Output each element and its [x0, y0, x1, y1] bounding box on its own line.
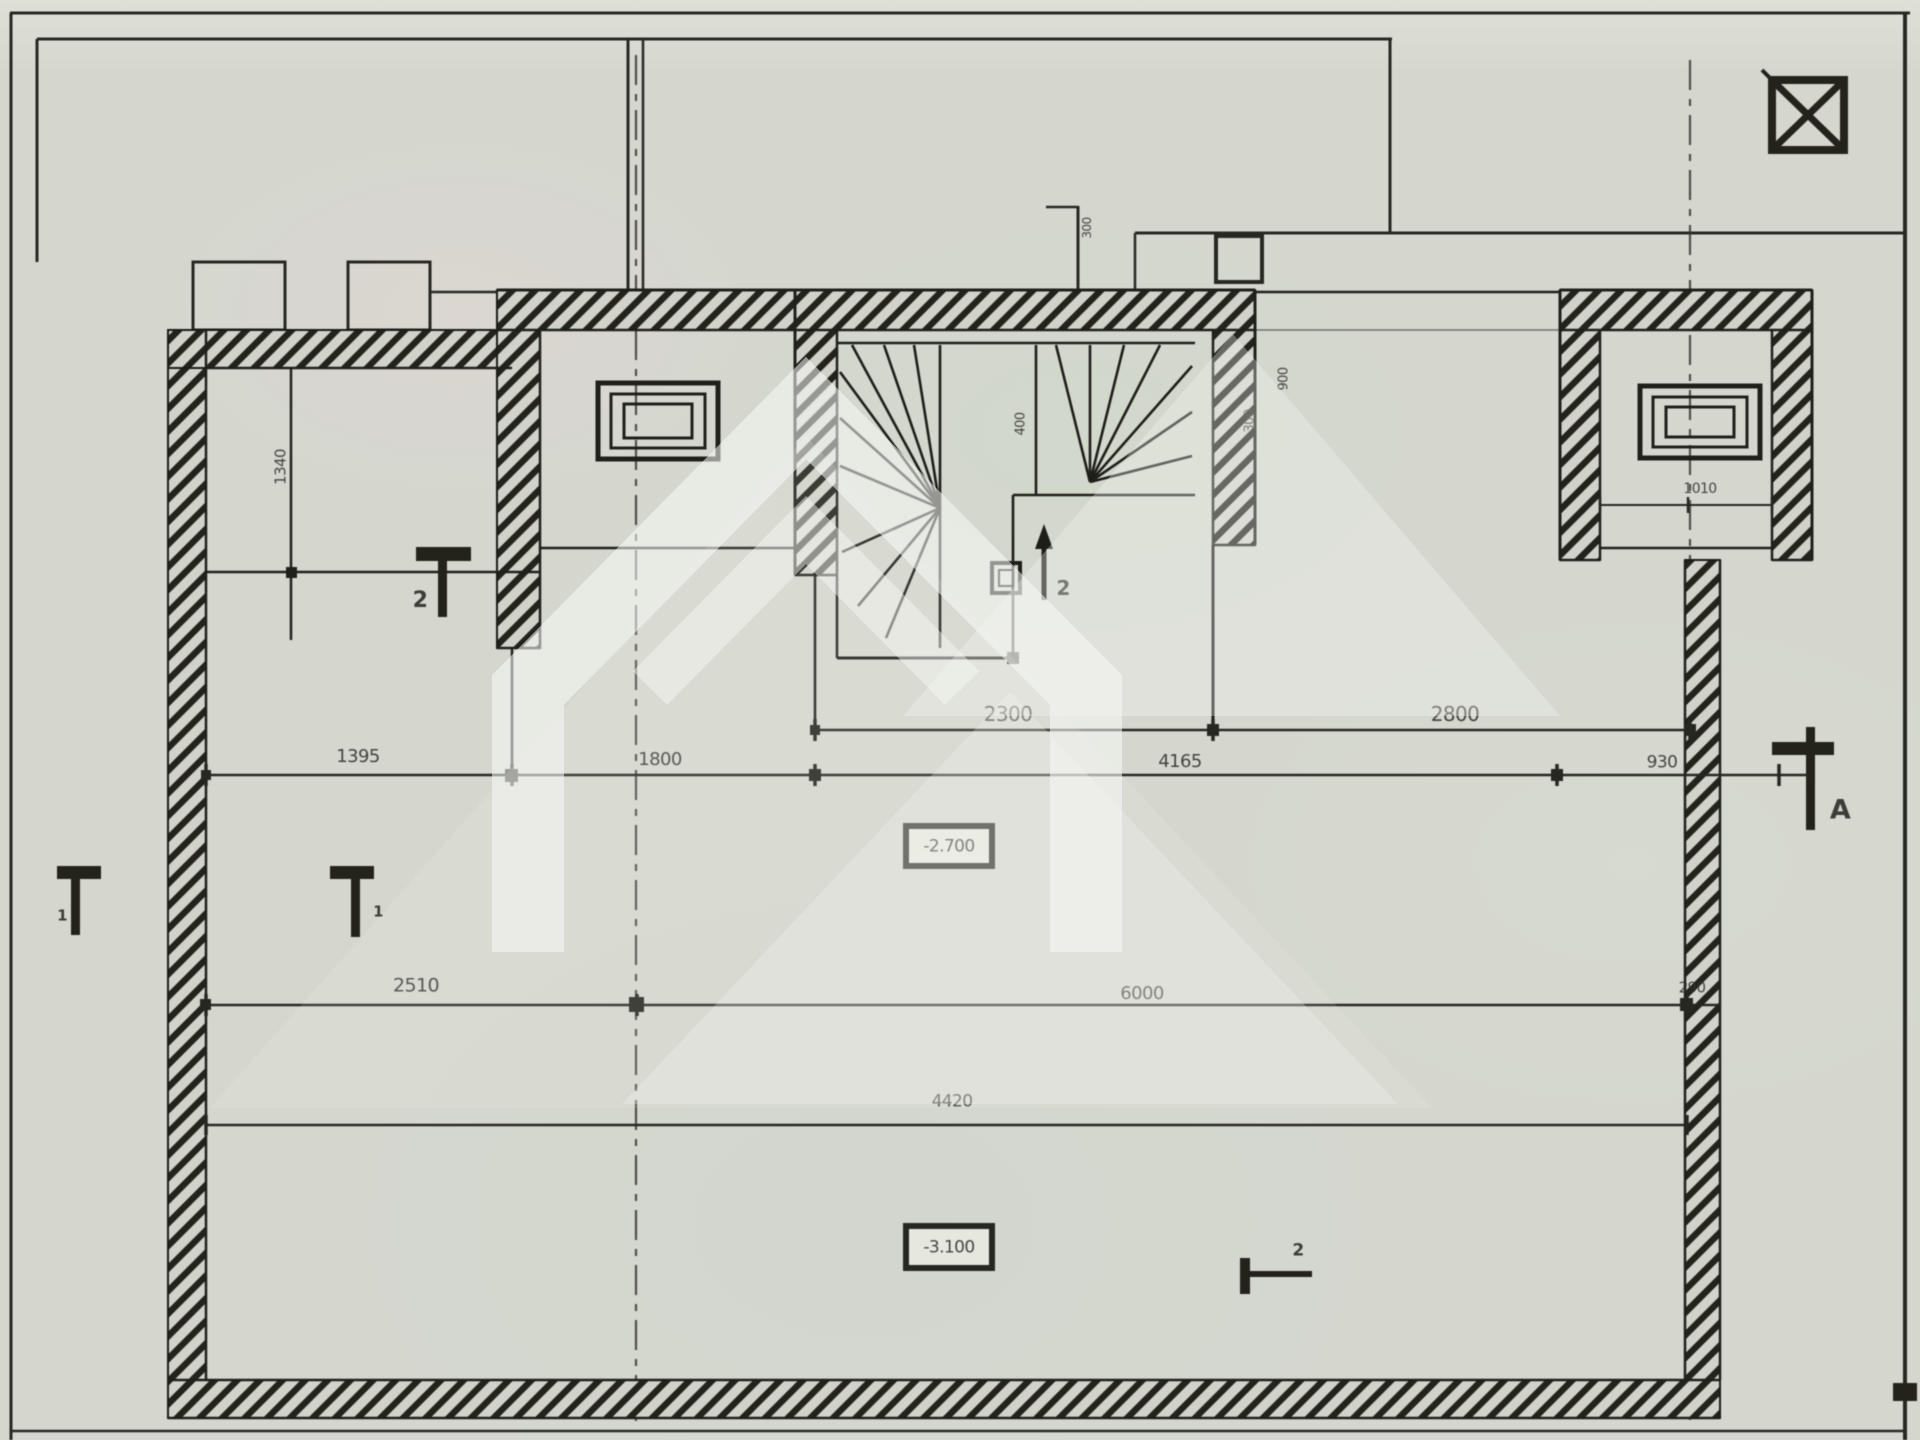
section-2-marker-lower: [1240, 1258, 1312, 1294]
small-dim-label: 400: [1015, 412, 1028, 435]
window-symbol-right: [1640, 386, 1760, 458]
axis-lines: [636, 55, 1690, 1425]
upper-outline: [193, 39, 1905, 330]
axis-a-marker: [1772, 727, 1834, 830]
dimension-label: 1395: [336, 748, 379, 766]
dimension-label: 1800: [638, 751, 681, 769]
stair-direction-arrow: [1035, 524, 1053, 600]
section-1-marker-right: [330, 866, 374, 937]
section-marker-label: 2: [1292, 1243, 1303, 1260]
small-dim-label: 300: [1081, 217, 1093, 238]
small-dim-label: 1010: [1683, 482, 1716, 496]
dimension-label: 6000: [1120, 985, 1163, 1003]
dimension-label: 4165: [1158, 753, 1201, 771]
section-marker-label: 2: [413, 590, 428, 612]
staircase: [837, 343, 1195, 664]
dimension-label: 290: [1679, 981, 1706, 996]
axis-label: A: [1830, 797, 1850, 824]
section-marker-label: 1: [57, 909, 67, 924]
section-1-marker-left: [57, 866, 101, 935]
level-label: -3.100: [923, 1240, 974, 1257]
small-dim-label: 300: [1244, 409, 1257, 432]
small-dim-label: 900: [1278, 367, 1291, 390]
dimension-label: 2800: [1431, 704, 1480, 724]
dimension-label: 4420: [932, 1094, 973, 1111]
stair-arrow-label: 2: [1056, 578, 1069, 598]
dimension-label: 2510: [393, 977, 439, 996]
floor-plan-drawing: [0, 0, 1920, 1440]
small-dim-label: 1340: [274, 449, 289, 485]
dimension-label: 2300: [984, 704, 1033, 724]
crossed-box-symbol: [1762, 70, 1844, 150]
level-marker-box: [906, 826, 992, 1268]
window-symbol-left: [598, 383, 718, 459]
section-marker-label: 1: [373, 905, 383, 920]
dimension-label: 930: [1647, 755, 1678, 772]
small-marker-box: [992, 563, 1020, 593]
blueprint-sheet: 2300 2800 1395 1800 4165 930 2510 6000 2…: [0, 0, 1920, 1440]
level-label: -2.700: [923, 839, 974, 856]
